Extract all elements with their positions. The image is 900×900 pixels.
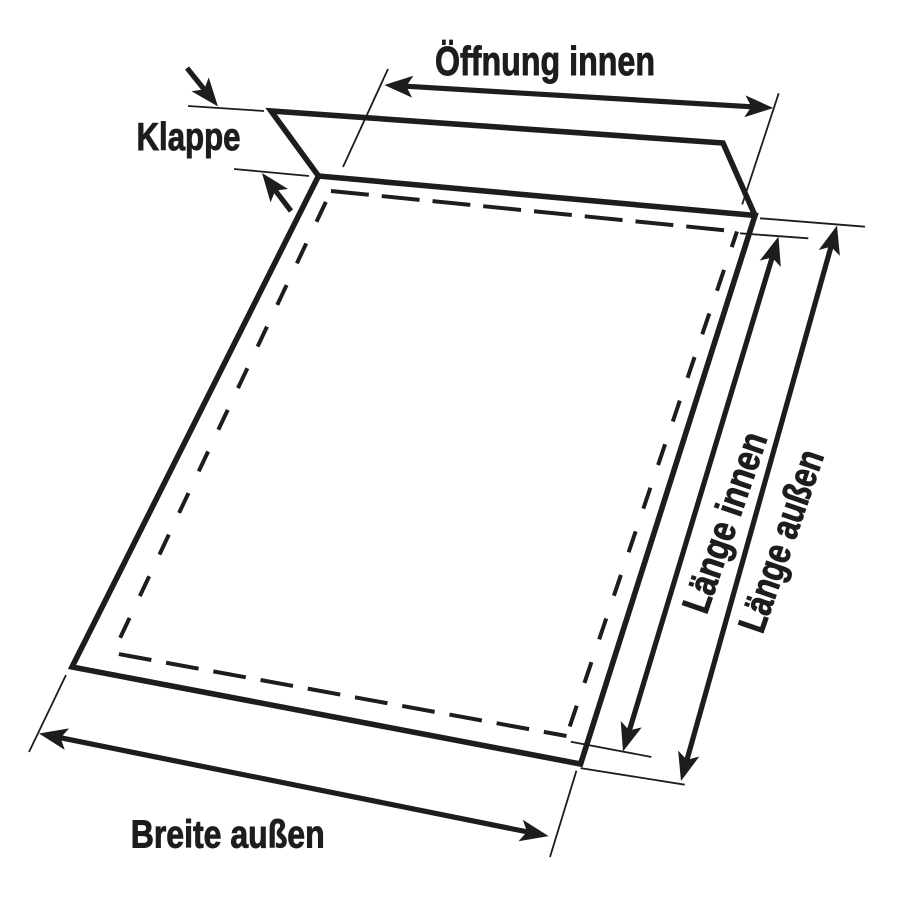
- svg-text:Breite außen: Breite außen: [131, 813, 325, 856]
- svg-text:Klappe: Klappe: [137, 116, 241, 159]
- svg-text:Öffnung innen: Öffnung innen: [435, 38, 655, 84]
